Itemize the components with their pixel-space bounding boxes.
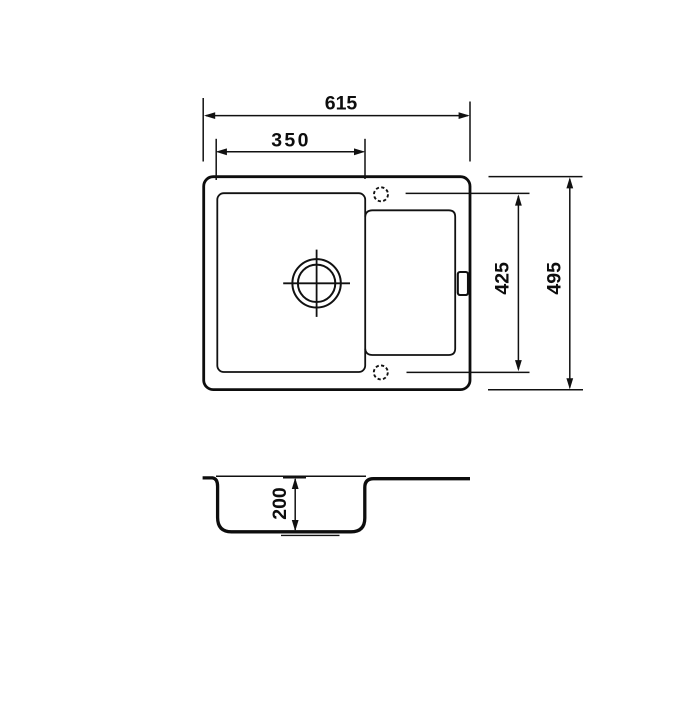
svg-text:350: 350 [271, 129, 310, 151]
svg-text:615: 615 [325, 93, 358, 115]
svg-text:495: 495 [544, 262, 566, 295]
svg-text:425: 425 [492, 262, 514, 295]
svg-text:200: 200 [269, 487, 291, 520]
